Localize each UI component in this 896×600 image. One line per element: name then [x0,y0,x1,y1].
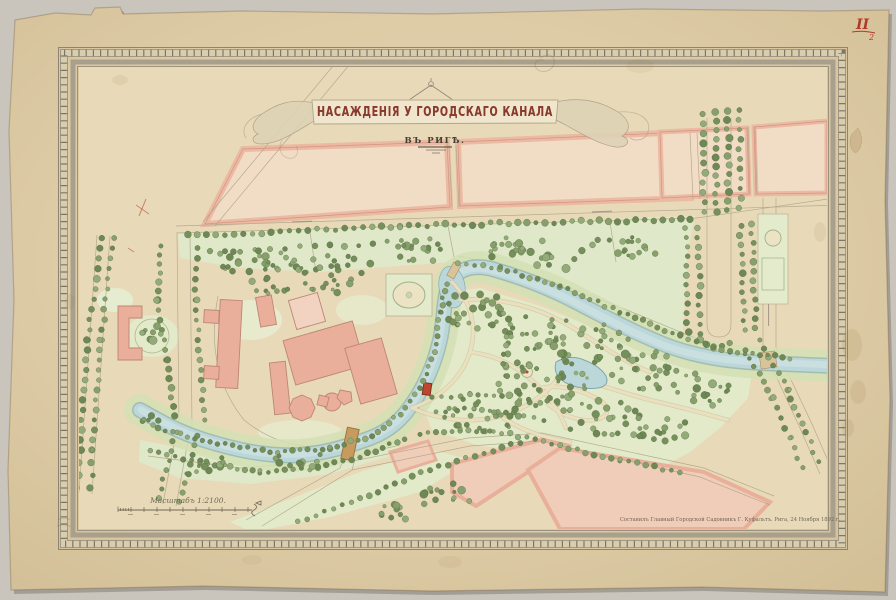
credit-line: Составилъ Главный Городской Садовникъ Г.… [620,516,841,523]
corner-mark-index: 2 [868,33,874,42]
east-strip-garden [758,214,788,304]
city-block [205,142,450,224]
map-content [74,60,840,532]
map-canvas: НАСАЖДЕНІЯ У ГОРОДСКАГО КАНАЛА ВЪ РИГѢ. … [0,0,896,600]
city-block [458,132,691,206]
octagon-pavilion [289,395,315,421]
corner-mark-numeral: II [855,17,870,33]
scale-label: Масштабъ 1:2100. [149,496,226,505]
red-pavilion [422,383,432,396]
city-block [754,121,827,194]
long-building [216,299,243,388]
scanned-map-sheet: НАСАЖДЕНІЯ У ГОРОДСКАГО КАНАЛА ВЪ РИГѢ. … [0,0,896,600]
map-title: НАСАЖДЕНІЯ У ГОРОДСКАГО КАНАЛА [317,105,553,120]
formal-parterre [386,274,432,316]
map-subtitle: ВЪ РИГѢ. [404,136,465,146]
